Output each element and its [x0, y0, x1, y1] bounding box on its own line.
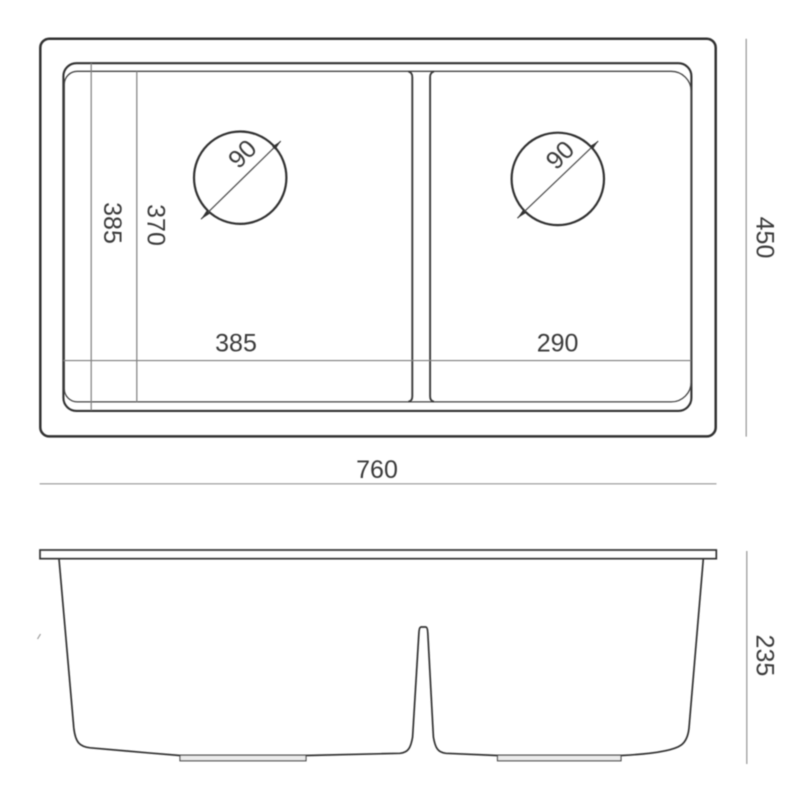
svg-text:235: 235	[751, 635, 779, 677]
svg-text:450: 450	[751, 217, 779, 259]
svg-text:290: 290	[537, 330, 579, 358]
svg-text:385: 385	[215, 330, 257, 358]
svg-text:385: 385	[98, 202, 126, 244]
svg-text:760: 760	[356, 456, 398, 484]
svg-text:370: 370	[142, 204, 170, 246]
